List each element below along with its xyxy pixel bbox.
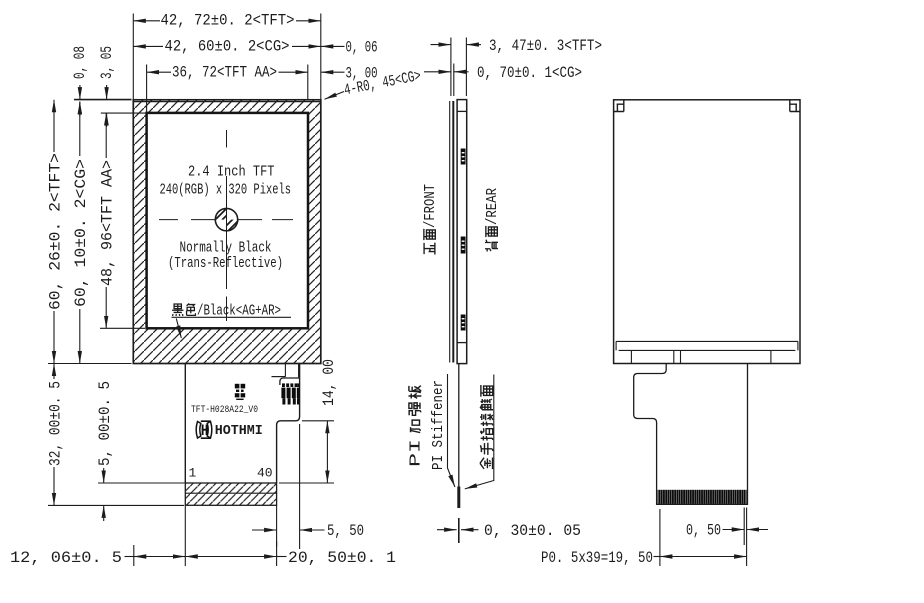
svg-text:60, 26±0. 2<TFT>: 60, 26±0. 2<TFT> [46,153,64,310]
svg-text:60, 10±0. 2<CG>: 60, 10±0. 2<CG> [72,159,90,307]
svg-text:3, 05: 3, 05 [98,46,116,79]
svg-text:Normally Black: Normally Black [180,240,272,257]
svg-text:42, 60±0. 2<CG>: 42, 60±0. 2<CG> [165,37,290,55]
svg-text:PI: PI [409,439,425,467]
svg-text:36, 72<TFT AA>: 36, 72<TFT AA> [172,63,277,81]
svg-text:/FRONT: /FRONT [423,184,439,228]
svg-text:0, 70±0. 1<CG>: 0, 70±0. 1<CG> [477,64,582,82]
svg-text:42, 72±0. 2<TFT>: 42, 72±0. 2<TFT> [161,12,295,30]
svg-text:(Trans-Reflective): (Trans-Reflective) [168,255,283,272]
svg-text:5, 50: 5, 50 [327,522,364,540]
svg-text:3, 47±0. 3<TFT>: 3, 47±0. 3<TFT> [489,37,602,55]
svg-text:0, 06: 0, 06 [346,39,378,57]
svg-text:0, 30±0. 05: 0, 30±0. 05 [484,522,581,540]
svg-text:14, 00: 14, 00 [320,359,338,406]
svg-text:/REAR: /REAR [485,188,501,225]
svg-text:0, 08: 0, 08 [71,46,89,79]
svg-text:1: 1 [189,466,197,481]
svg-text:20, 50±0. 1: 20, 50±0. 1 [288,549,396,567]
svg-text:5, 00±0. 5: 5, 00±0. 5 [96,381,114,466]
svg-text:P0. 5x39=19, 50: P0. 5x39=19, 50 [541,549,653,567]
svg-text:PI Stiffener: PI Stiffener [431,380,447,470]
svg-text:0, 50: 0, 50 [686,522,721,540]
svg-text:240(RGB) x 320 Pixels: 240(RGB) x 320 Pixels [160,182,292,199]
svg-text:40: 40 [257,466,273,481]
svg-text:HOTHMI: HOTHMI [215,424,263,439]
svg-text:48, 96<TFT AA>: 48, 96<TFT AA> [99,160,117,286]
svg-text:32, 00±0. 5: 32, 00±0. 5 [46,381,64,466]
svg-text:TFT-H028A22_V0: TFT-H028A22_V0 [191,405,258,416]
svg-text:2.4 Inch TFT: 2.4 Inch TFT [188,164,275,181]
svg-text:12, 06±0. 5: 12, 06±0. 5 [10,549,122,567]
